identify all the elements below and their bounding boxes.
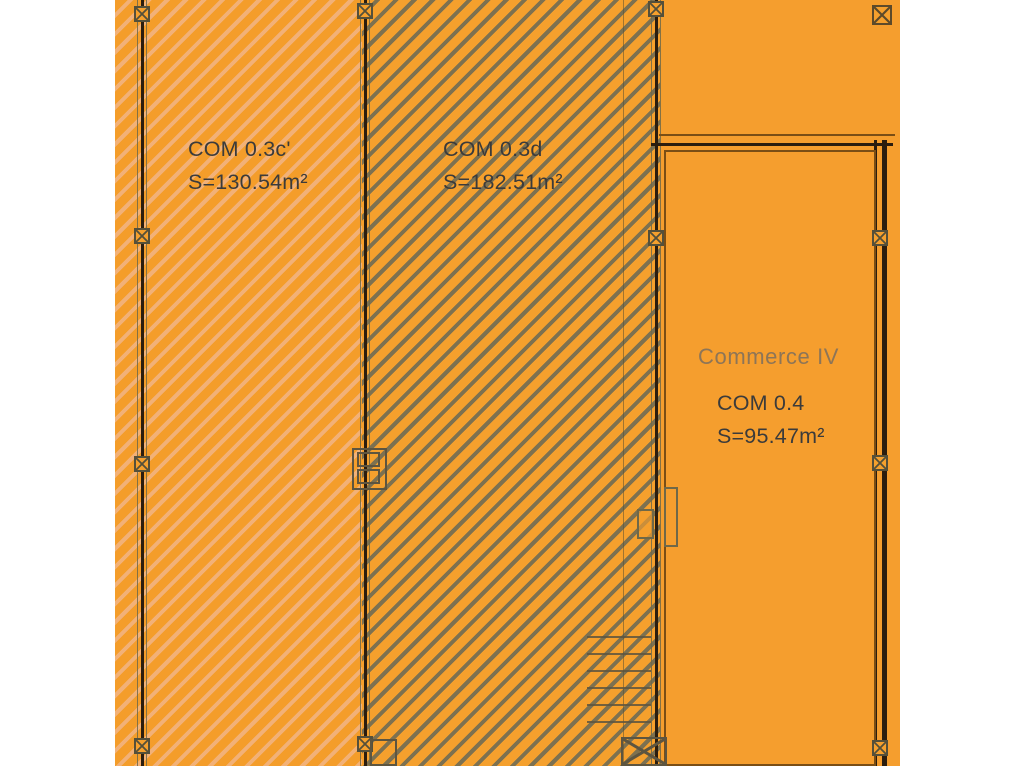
junction-marker-icon: [134, 738, 150, 754]
stairs-icon: [587, 687, 651, 689]
wall-horizontal-com04-top: [651, 140, 893, 149]
wall-left: [137, 0, 147, 766]
door-icon: [664, 487, 678, 547]
stairs-icon: [587, 636, 651, 638]
zone-area: S=130.54m²: [188, 166, 308, 199]
zone-area: S=182.51m²: [443, 166, 563, 199]
panel-marker-icon: [352, 448, 387, 490]
zone-name: COM 0.3c': [188, 133, 308, 166]
zone-label-com-0-4: COM 0.4 S=95.47m²: [717, 387, 825, 453]
junction-marker-icon: [872, 455, 888, 471]
zone-com-0-3d: [362, 0, 660, 766]
stairs-icon: [587, 653, 651, 655]
door-icon: [637, 509, 654, 539]
zone-name: COM 0.3d: [443, 133, 563, 166]
junction-marker-icon: [357, 3, 373, 19]
floor-plan-drawing: COM 0.3c' S=130.54m² COM 0.3d S=182.51m²…: [115, 0, 900, 766]
stairs-icon: [587, 670, 651, 672]
zone-label-com-0-3d: COM 0.3d S=182.51m²: [443, 133, 563, 199]
junction-marker-icon: [134, 6, 150, 22]
com-0-4-room-outline: [664, 150, 876, 766]
zone-name: COM 0.4: [717, 387, 825, 420]
zone-com-0-3c: [115, 0, 362, 766]
floor-plan-page: COM 0.3c' S=130.54m² COM 0.3d S=182.51m²…: [0, 0, 1024, 768]
junction-marker-icon: [648, 230, 664, 246]
stairs-icon: [587, 704, 651, 706]
junction-marker-icon: [134, 456, 150, 472]
wall-middle: [360, 0, 370, 766]
zone-area: S=95.47m²: [717, 420, 825, 453]
wall-right-of-com03d: [651, 0, 661, 766]
junction-marker-icon: [648, 1, 664, 17]
crossed-square-marker-icon: [872, 5, 892, 25]
zone-title-commerce-iv: Commerce IV: [698, 344, 839, 370]
junction-marker-icon: [872, 740, 888, 756]
zone-label-com-0-3c: COM 0.3c' S=130.54m²: [188, 133, 308, 199]
junction-marker-icon: [872, 230, 888, 246]
stairs-icon: [587, 721, 651, 723]
hatch-access-icon: [621, 737, 667, 766]
junction-marker-icon: [134, 228, 150, 244]
panel-marker-icon: [370, 739, 397, 766]
interior-line: [623, 0, 624, 766]
upper-area-outline: [659, 134, 895, 136]
